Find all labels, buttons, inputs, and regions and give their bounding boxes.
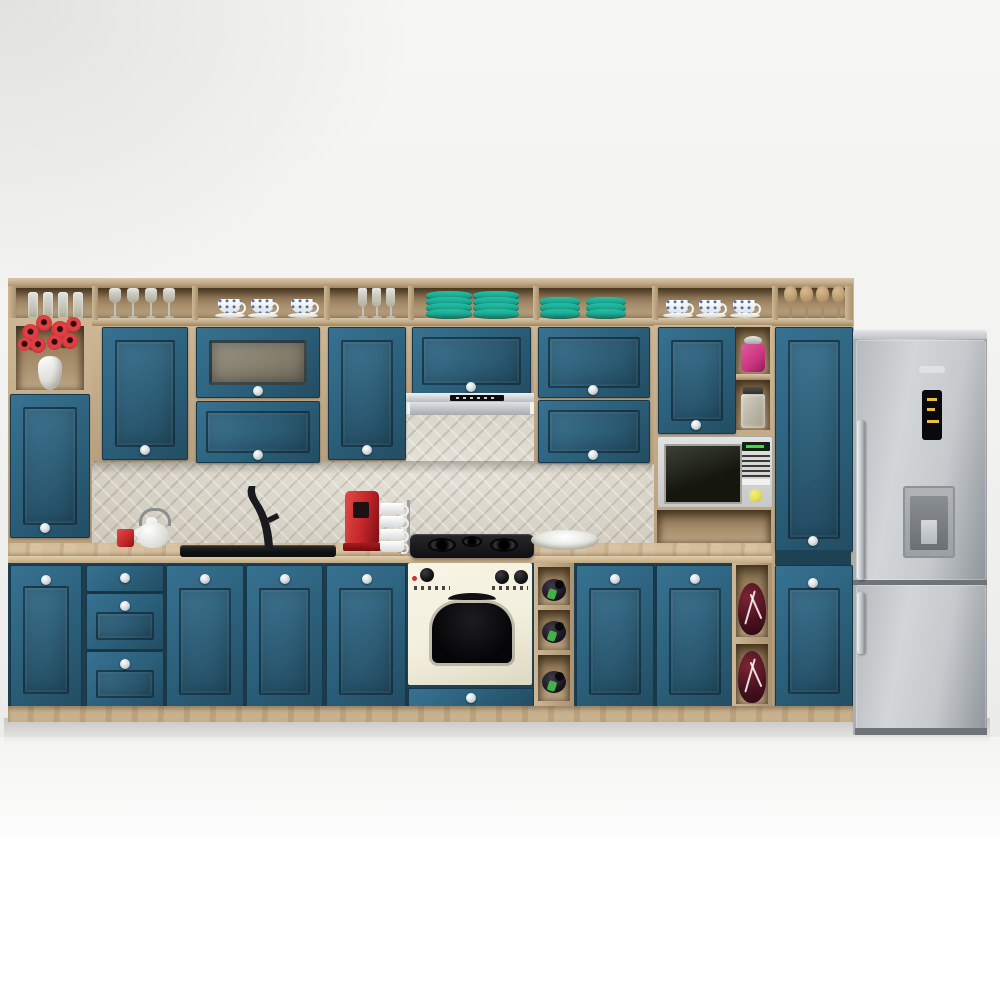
hood-flap-door: [412, 327, 531, 395]
plinth: [8, 706, 854, 722]
base-door: [10, 565, 82, 707]
cabinet-knob: [120, 573, 130, 583]
cabinet-knob: [690, 574, 700, 584]
microwave-keypad: [742, 455, 770, 477]
hood-controls: [450, 395, 504, 401]
oven-tick-marks: [414, 586, 450, 590]
cabinet-knob: [691, 420, 701, 430]
wine-bottle: [542, 671, 566, 693]
coffee-cup: [248, 299, 278, 318]
cabinet-knob: [140, 445, 150, 455]
freezer-handle: [857, 592, 865, 654]
coffee-cup: [288, 299, 318, 318]
microwave-start-button: [749, 489, 762, 502]
cabinet-knob: [120, 659, 130, 669]
glass-flap-door: [196, 327, 320, 398]
oven-knob: [495, 570, 509, 584]
cabinet-knob: [362, 574, 372, 584]
freezer-door: [856, 585, 986, 731]
red-mug: [117, 529, 134, 547]
drawer-front: [86, 651, 164, 708]
canister-cubby: [736, 327, 770, 374]
wine-glass: [144, 288, 158, 318]
wine-glass: [126, 288, 140, 318]
hood-canopy: [410, 402, 530, 415]
water-dispenser: [903, 486, 955, 558]
plate-stack: [586, 300, 626, 318]
shelf-divider: [533, 286, 539, 320]
canister-cubby: [736, 380, 770, 430]
flap-door: [196, 401, 320, 463]
cabinet-knob: [588, 450, 598, 460]
wine-rack: [534, 563, 574, 706]
oven-handle: [448, 593, 496, 600]
wooden-spoon: [832, 286, 845, 318]
champagne-flute: [370, 288, 384, 318]
cabinet-knob: [253, 386, 263, 396]
teacup: [730, 300, 760, 318]
wine-bottle: [542, 579, 566, 601]
range-hood: [406, 393, 534, 415]
coffee-cup: [215, 299, 245, 318]
champagne-flute: [384, 288, 398, 318]
wall-cabinet-door: [102, 327, 188, 460]
wooden-spoon: [800, 286, 813, 318]
microwave-buttons: [742, 479, 770, 485]
plate-stack: [540, 300, 580, 318]
coffee-machine-window: [353, 502, 369, 518]
shelf-divider: [192, 286, 198, 320]
wooden-spoon: [816, 286, 829, 318]
pantry-divider: [775, 550, 851, 565]
open-shelf: [657, 510, 771, 543]
shelf-divider: [408, 286, 414, 320]
oven-indicator-light: [412, 576, 417, 581]
microwave-tower: [654, 325, 772, 563]
faucet: [234, 486, 286, 550]
flap-door: [538, 327, 650, 398]
fridge-handle: [857, 420, 865, 580]
wine-glass: [162, 288, 176, 318]
wooden-spoon: [784, 286, 797, 318]
cabinet-knob: [200, 574, 210, 584]
cabinet-knob: [808, 536, 818, 546]
drawer-front: [86, 565, 164, 592]
shelf-top-board: [8, 278, 853, 288]
pantry-lower-door: [775, 565, 853, 707]
teacup: [663, 300, 693, 318]
base-door: [246, 565, 323, 708]
cabinet-knob: [466, 693, 476, 703]
pantry-upper-door: [775, 327, 853, 552]
base-door: [576, 565, 654, 708]
serving-dish: [531, 528, 601, 556]
shelf-divider: [8, 286, 16, 320]
cabinet-knob: [610, 574, 620, 584]
base-door: [326, 565, 406, 708]
microwave-display: [742, 442, 770, 451]
wall-cabinet-door: [328, 327, 406, 460]
oven-drawer: [408, 688, 534, 708]
coffee-machine: [345, 491, 379, 551]
flap-door: [538, 400, 650, 463]
fridge-door: [856, 340, 986, 580]
base-door: [166, 565, 244, 708]
cabinet-knob: [588, 385, 598, 395]
plate-stack: [426, 294, 472, 318]
microwave: [657, 436, 773, 508]
pink-canister: [741, 344, 765, 372]
cabinet-knob: [41, 575, 51, 585]
oven: [408, 563, 532, 685]
wine-glass: [108, 288, 122, 318]
shelf-divider: [324, 286, 330, 320]
oven-knob: [420, 568, 434, 582]
fridge-display: [922, 390, 942, 440]
cabinet-knob: [808, 578, 818, 588]
fridge: [853, 330, 989, 735]
cabinet-knob: [466, 382, 476, 392]
floor: [0, 737, 1000, 1000]
cabinet-knob: [280, 574, 290, 584]
red-flowers: [18, 314, 84, 364]
top-shelf-row: [8, 278, 853, 326]
wall-shading: [0, 0, 420, 300]
fridge-base: [855, 728, 987, 735]
countertop-edge: [8, 556, 772, 563]
tower-door: [658, 327, 736, 434]
cabinet-knob: [40, 523, 50, 533]
oven-knob: [514, 570, 528, 584]
shelf-divider: [772, 286, 778, 320]
kitchen-render: [0, 0, 1000, 1000]
base-door: [656, 565, 734, 708]
teacup: [696, 300, 726, 318]
microwave-window: [664, 444, 742, 504]
cabinet-knob: [362, 445, 372, 455]
cabinet-knob: [253, 450, 263, 460]
drawer-front: [86, 593, 164, 650]
open-shelf-column: [732, 563, 772, 706]
oven-tick-marks: [492, 586, 528, 590]
coffee-machine-base: [343, 543, 381, 551]
cabinet-knob: [120, 601, 130, 611]
decor-vase: [738, 651, 766, 703]
wine-bottle: [542, 621, 566, 643]
oven-window: [432, 603, 512, 663]
teapot-body: [137, 522, 169, 548]
decor-vase: [738, 583, 766, 635]
shelf-divider: [92, 286, 98, 320]
gas-cooktop: [410, 534, 534, 558]
floor-shadow: [4, 718, 990, 752]
shelf-divider: [652, 286, 658, 320]
glass-canister: [741, 394, 765, 428]
fridge-logo: [919, 366, 945, 373]
plate-stack: [473, 294, 519, 318]
shelf-divider: [845, 286, 853, 320]
champagne-flute: [356, 288, 370, 318]
left-unit-door: [10, 394, 90, 538]
teapot: [134, 508, 172, 548]
